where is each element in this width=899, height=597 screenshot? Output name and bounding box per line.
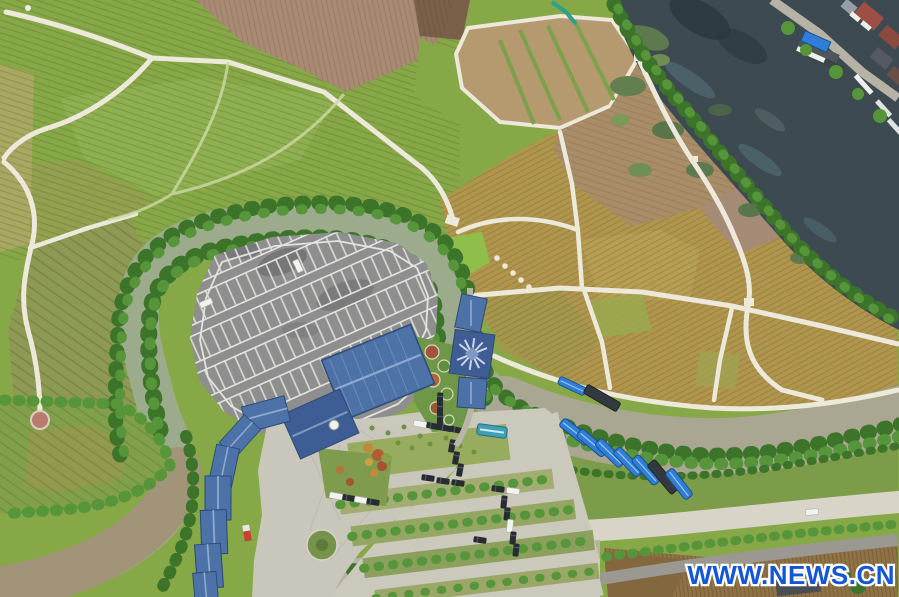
aerial-photo-canvas: WWW.NEWS.CN — [0, 0, 899, 597]
aerial-photo: WWW.NEWS.CN — [0, 0, 899, 597]
watermark: WWW.NEWS.CN — [687, 560, 895, 590]
satellite-dish — [329, 420, 339, 430]
